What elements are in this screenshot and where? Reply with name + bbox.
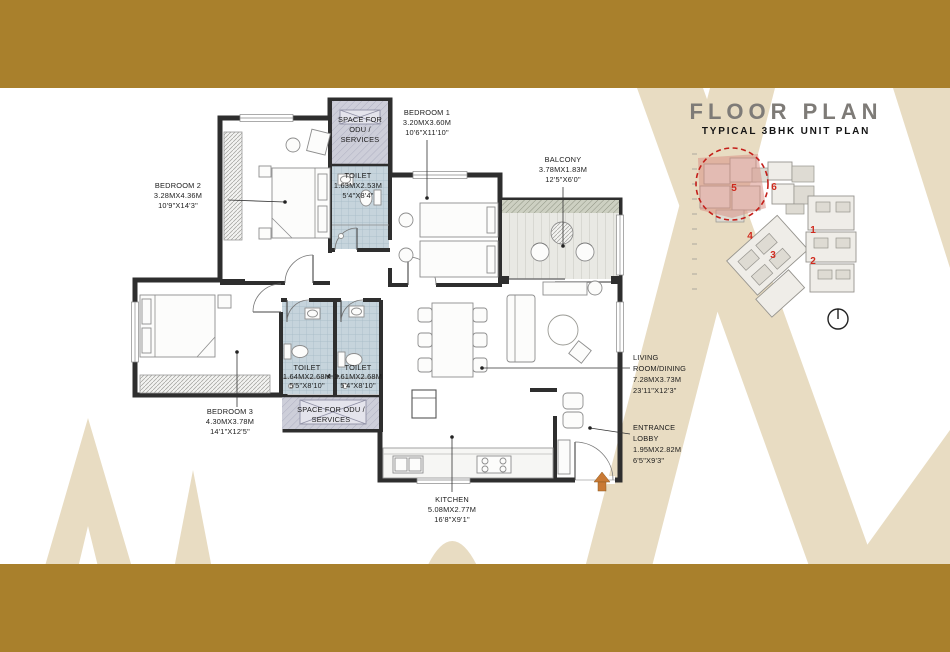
kitchen-label: KITCHEN: [435, 495, 469, 504]
lobby-dim-m: 1.95MX2.82M: [633, 445, 681, 454]
living-label-line1: LIVING: [633, 353, 658, 362]
toilet-common-label: TOILET: [294, 363, 321, 372]
unit-number-3: 3: [770, 250, 776, 261]
toilet-bedroom2-label: TOILET: [345, 171, 372, 180]
top-bar: [0, 0, 950, 88]
bedroom3-dim-m: 4.30MX3.78M: [206, 417, 254, 426]
odu-upper-line3: SERVICES: [341, 135, 380, 144]
kitchen-dim-m: 5.08MX2.77M: [428, 505, 476, 514]
floor-plan: BEDROOM 2 3.28MX4.36M 10'9"X14'3" BEDROO…: [125, 90, 725, 550]
lobby-dim-ft: 6'5"X9'3": [633, 456, 664, 465]
main-entrance: [575, 442, 615, 491]
arch-corner-topright: [893, 88, 950, 268]
toilet-common-dim-m: 1.64MX2.68M: [283, 372, 331, 381]
living-label-line2: ROOM/DINING: [633, 364, 686, 373]
toilet-bedroom2-dim-ft: 5'4"X8'4": [342, 191, 373, 200]
keyplan-cluster-right: 1 2: [806, 196, 856, 292]
unit-number-2: 2: [810, 256, 816, 267]
floor-level-ticks: [692, 154, 697, 289]
living-dim-m: 7.28MX3.73M: [633, 375, 681, 384]
living-dining-furniture: [418, 281, 602, 377]
balcony-planter: [501, 200, 619, 213]
entry-arrow-icon: [594, 472, 610, 491]
page: BEDROOM 2 3.28MX4.36M 10'9"X14'3" BEDROO…: [0, 0, 950, 652]
bedroom1-dim-ft: 10'6"X11'10": [405, 128, 449, 137]
lobby-furniture: [558, 393, 583, 474]
page-subtitle: TYPICAL 3BHK UNIT PLAN: [688, 126, 884, 137]
lobby-label-line2: LOBBY: [633, 434, 659, 443]
unit-number-6: 6: [771, 182, 777, 193]
unit-number-4: 4: [747, 231, 753, 242]
bottom-bar: [0, 564, 950, 652]
lobby-label-line1: ENTRANCE: [633, 423, 675, 432]
page-title: FLOOR PLAN: [688, 99, 884, 125]
key-plan: 5 6 4 3 1: [690, 138, 870, 338]
bedroom2-furniture: [224, 129, 330, 240]
north-compass-icon: [828, 309, 848, 329]
living-dim-ft: 23'11"X12'3": [633, 386, 677, 395]
title-block: FLOOR PLAN TYPICAL 3BHK UNIT PLAN: [688, 99, 884, 137]
balcony-label: BALCONY: [545, 155, 582, 164]
bedroom3-dim-ft: 14'1"X12'5": [210, 427, 250, 436]
odu-upper-line1: SPACE FOR: [338, 115, 382, 124]
bedroom3-label: BEDROOM 3: [207, 407, 253, 416]
odu-lower-line2: SERVICES: [312, 415, 351, 424]
bedroom2-dim-ft: 10'9"X14'3": [158, 201, 198, 210]
kitchen-furniture: [383, 390, 553, 478]
unit-number-5: 5: [731, 183, 737, 194]
balcony-dim-m: 3.78MX1.83M: [539, 165, 587, 174]
toilet-common-dim-ft: 5'5"X8'10": [289, 381, 325, 390]
odu-upper-line2: ODU /: [349, 125, 371, 134]
toilet-bedroom3-label: TOILET: [345, 363, 372, 372]
odu-lower-line1: SPACE FOR ODU /: [297, 405, 365, 414]
bedroom1-label: BEDROOM 1: [404, 108, 450, 117]
unit-number-1: 1: [810, 225, 816, 236]
kitchen-dim-ft: 16'8"X9'1": [434, 515, 470, 524]
balcony-dim-ft: 12'5"X6'0": [545, 175, 581, 184]
interior-walls: [220, 100, 557, 480]
toilet-bedroom2-dim-m: 1.63MX2.53M: [334, 181, 382, 190]
toilet-bedroom3-dim-ft: 5'4"X8'10": [340, 381, 376, 390]
bedroom2-label: BEDROOM 2: [155, 181, 201, 190]
bedroom3-furniture: [140, 295, 270, 393]
bedroom1-dim-m: 3.20MX3.60M: [403, 118, 451, 127]
bedroom2-dim-m: 3.28MX4.36M: [154, 191, 202, 200]
bedroom1-furniture: [399, 203, 498, 277]
toilet-bedroom3-dim-m: 1.61MX2.68M: [334, 372, 382, 381]
keyplan-cluster-top: 5 6: [696, 148, 814, 222]
